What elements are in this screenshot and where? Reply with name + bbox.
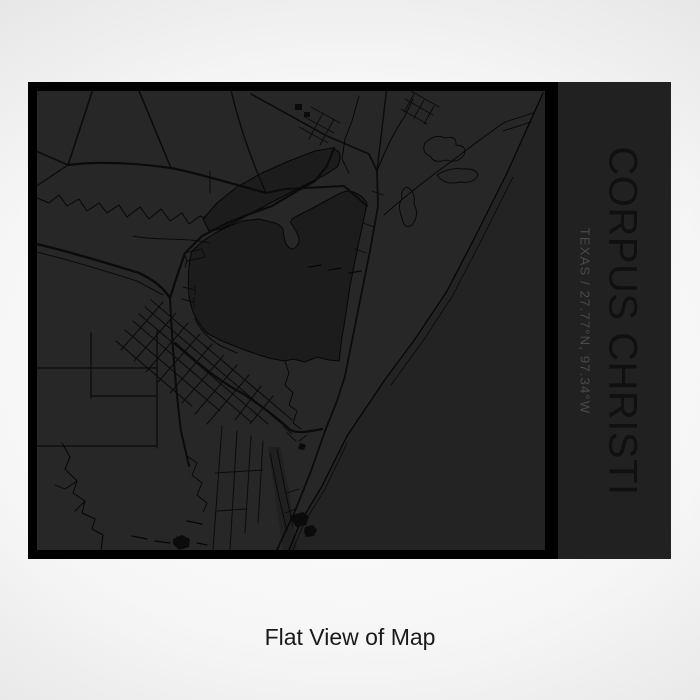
map-subtitle: TEXAS / 27.77°N, 97.34°W [578,227,593,414]
map-title: CORPUS CHRISTI [600,146,645,495]
title-panel: TEXAS / 27.77°N, 97.34°W CORPUS CHRISTI [558,82,671,559]
map-print-image[interactable]: TEXAS / 27.77°N, 97.34°W CORPUS CHRISTI [28,82,671,559]
map-frame [28,82,558,559]
page-background: TEXAS / 27.77°N, 97.34°W CORPUS CHRISTI … [0,0,700,700]
view-caption: Flat View of Map [0,624,700,651]
map-graphic [37,91,545,550]
